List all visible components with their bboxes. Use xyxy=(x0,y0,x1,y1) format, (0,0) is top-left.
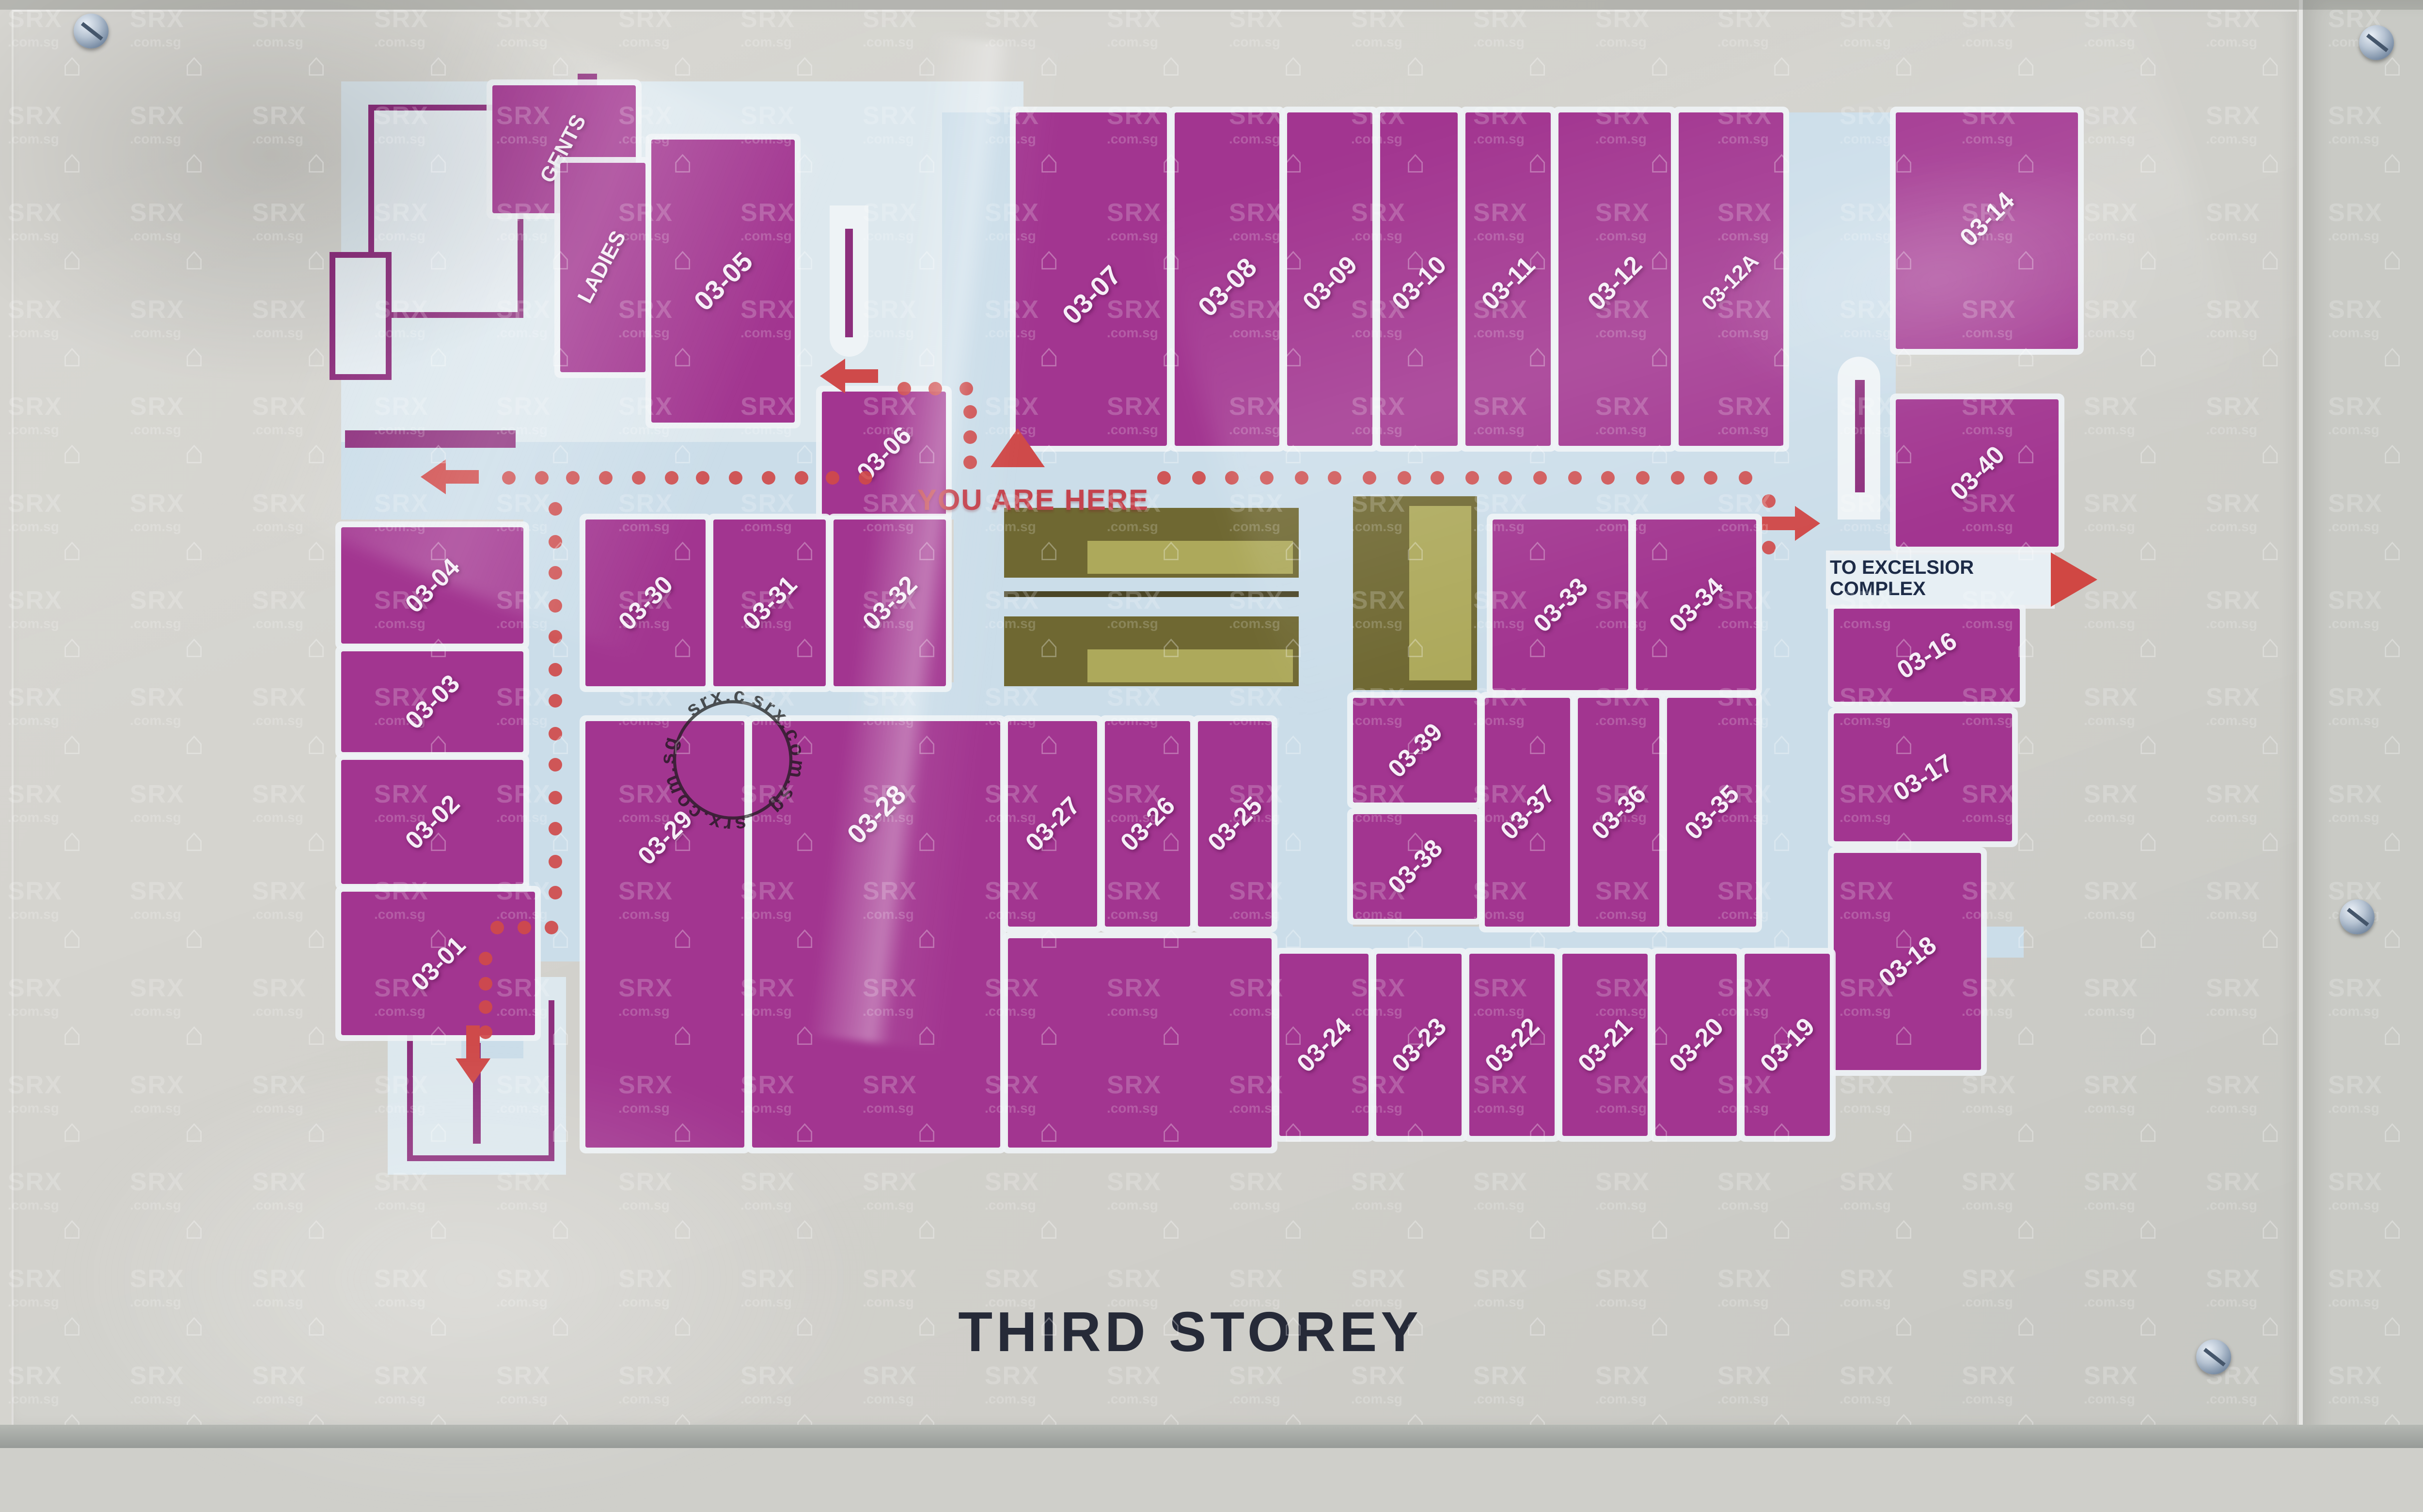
route-dot xyxy=(729,471,742,485)
unit-label: 03-21 xyxy=(1572,1012,1638,1078)
unit-03-27: 03-27 xyxy=(1008,721,1097,927)
unit-03-30: 03-30 xyxy=(585,520,706,686)
unit-label: 03-40 xyxy=(1944,440,2010,506)
route-dot xyxy=(1636,471,1650,485)
unit-03-37: 03-37 xyxy=(1485,698,1570,927)
route-dot xyxy=(549,694,562,708)
route-dot xyxy=(545,921,558,934)
route-dot xyxy=(549,566,562,580)
unit-03-19: 03-19 xyxy=(1745,954,1830,1136)
escalator-icon xyxy=(830,205,868,357)
panel-top-edge xyxy=(0,0,2423,10)
route-dot xyxy=(1704,471,1717,485)
unit-03-36: 03-36 xyxy=(1578,698,1659,927)
unit-label: 03-19 xyxy=(1754,1012,1820,1078)
route-dot xyxy=(1225,471,1239,485)
route-dot xyxy=(1739,471,1752,485)
unit-03-01: 03-01 xyxy=(341,892,535,1035)
unit-label: 03-26 xyxy=(1115,791,1180,857)
route-dot xyxy=(963,430,977,444)
unit-label: 03-33 xyxy=(1527,572,1593,638)
escalator-well-step xyxy=(1410,506,1471,680)
escalator-well-step xyxy=(1086,540,1293,573)
unit-03-03: 03-03 xyxy=(341,651,523,752)
route-dot xyxy=(762,471,775,485)
route-dot xyxy=(1671,471,1684,485)
route-dot xyxy=(479,1000,492,1014)
route-dot xyxy=(1192,471,1206,485)
unit-03-26: 03-26 xyxy=(1105,721,1190,927)
route-dot xyxy=(1498,471,1512,485)
panel-bottom-edge xyxy=(0,1425,2423,1448)
unit-03-20: 03-20 xyxy=(1655,954,1737,1136)
route-dot xyxy=(1363,471,1376,485)
escalator-well xyxy=(1004,508,1299,578)
you-are-here-label: YOU ARE HERE xyxy=(868,485,1198,518)
route-dot xyxy=(960,382,973,395)
unit-03-17: 03-17 xyxy=(1834,713,2012,841)
route-dot xyxy=(518,921,531,934)
floor-plan: GENTSLADIES03-0503-0603-0703-0803-0903-1… xyxy=(0,0,2423,1448)
unit-label: 03-34 xyxy=(1663,572,1729,638)
route-dot xyxy=(1568,471,1582,485)
unit-label: 03-28 xyxy=(841,779,912,850)
unit-label: 03-39 xyxy=(1382,717,1448,783)
unit-03-38: 03-38 xyxy=(1353,814,1477,919)
screw-icon xyxy=(2196,1339,2231,1374)
unit-label: 03-16 xyxy=(1892,626,1962,684)
unit-03-10: 03-10 xyxy=(1380,112,1458,446)
route-dot xyxy=(963,456,977,469)
unit-label: 03-03 xyxy=(399,669,465,735)
unit-label: 03-07 xyxy=(1056,259,1127,331)
route-dot xyxy=(549,599,562,613)
excelsior-exit-label: TO EXCELSIOR COMPLEX xyxy=(1830,554,2051,605)
unit-03-14: 03-14 xyxy=(1896,112,2078,349)
unit-label: 03-14 xyxy=(1954,186,2020,252)
route-dot xyxy=(549,791,562,804)
screw-icon xyxy=(2359,25,2394,60)
route-dot xyxy=(1295,471,1308,485)
corridor xyxy=(1272,682,1353,954)
route-arrow-icon xyxy=(456,1025,490,1084)
unit-label: 03-08 xyxy=(1192,252,1263,323)
unit-03-09: 03-09 xyxy=(1287,112,1372,446)
unit-label: 03-23 xyxy=(1386,1012,1452,1078)
route-dot xyxy=(1762,541,1776,554)
excelsior-arrow-icon xyxy=(2051,552,2097,607)
unit-03-25: 03-25 xyxy=(1198,721,1272,927)
screw-icon xyxy=(74,14,109,48)
route-dot xyxy=(549,630,562,644)
route-dot xyxy=(1398,471,1411,485)
corridor xyxy=(942,112,1016,446)
unit-LADIES: LADIES xyxy=(560,163,645,372)
route-dot xyxy=(897,382,911,395)
unit-label: 03-30 xyxy=(613,570,678,636)
unit-label: 03-01 xyxy=(405,930,471,996)
route-dot xyxy=(928,382,942,395)
unit-label: 03-10 xyxy=(1386,250,1452,316)
route-dot xyxy=(1260,471,1274,485)
unit-label: 03-36 xyxy=(1586,779,1652,845)
unit-03-02: 03-02 xyxy=(341,760,523,884)
route-dot xyxy=(549,535,562,549)
unit-03-12: 03-12 xyxy=(1558,112,1671,446)
unit-label: 03-27 xyxy=(1020,791,1086,857)
route-dot xyxy=(490,921,504,934)
wall-segment xyxy=(1004,591,1299,597)
escalator-icon xyxy=(1838,357,1880,520)
unit-block xyxy=(1008,938,1272,1148)
unit-03-08: 03-08 xyxy=(1175,112,1279,446)
route-dot xyxy=(549,502,562,516)
unit-label: 03-24 xyxy=(1291,1012,1357,1078)
route-dot xyxy=(632,471,645,485)
unit-03-35: 03-35 xyxy=(1667,698,1756,927)
route-dot xyxy=(1431,471,1444,485)
unit-label: 03-11 xyxy=(1476,251,1541,315)
svg-text:srx.com.sg srx.com.sg srx.co: srx.com.sg srx.com.sg srx.com.sg xyxy=(651,678,814,841)
route-arrow-icon xyxy=(820,359,878,394)
route-arrow-icon xyxy=(1762,506,1820,541)
unit-label: 03-37 xyxy=(1495,779,1560,845)
unit-label: 03-04 xyxy=(399,552,465,618)
route-dot xyxy=(1601,471,1615,485)
unit-03-07: 03-07 xyxy=(1016,112,1167,446)
route-dot xyxy=(549,886,562,899)
unit-03-16: 03-16 xyxy=(1834,609,2020,702)
route-dot xyxy=(826,471,839,485)
unit-03-11: 03-11 xyxy=(1465,112,1551,446)
route-dot xyxy=(479,977,492,991)
unit-03-12A: 03-12A xyxy=(1679,112,1783,446)
unit-03-40: 03-40 xyxy=(1896,399,2059,547)
unit-label: 03-17 xyxy=(1888,748,1958,806)
route-dot xyxy=(1465,471,1479,485)
route-dot xyxy=(665,471,678,485)
unit-label: 03-20 xyxy=(1663,1012,1729,1078)
unit-03-33: 03-33 xyxy=(1493,520,1628,690)
unit-label: 03-05 xyxy=(688,246,759,317)
you-are-here-marker-icon xyxy=(991,428,1045,467)
unit-label: 03-02 xyxy=(399,789,465,855)
page-title: THIRD STOREY xyxy=(861,1303,1520,1367)
unit-label: 03-22 xyxy=(1479,1012,1545,1078)
photo-of-mall-directory: GENTSLADIES03-0503-0603-0703-0803-0903-1… xyxy=(0,0,2423,1448)
escalator-well xyxy=(1353,496,1477,690)
route-dot xyxy=(696,471,709,485)
unit-03-22: 03-22 xyxy=(1469,954,1555,1136)
screw-icon xyxy=(2340,899,2375,934)
escalator-well xyxy=(1004,616,1299,686)
escalator-slot xyxy=(845,229,853,337)
route-dot xyxy=(1157,471,1171,485)
route-dot xyxy=(963,405,977,419)
unit-03-39: 03-39 xyxy=(1353,698,1477,803)
route-dot xyxy=(549,758,562,772)
outlined-room xyxy=(330,252,392,380)
unit-03-05: 03-05 xyxy=(651,140,795,423)
route-dot xyxy=(549,663,562,677)
unit-03-23: 03-23 xyxy=(1376,954,1462,1136)
unit-label: 03-38 xyxy=(1382,834,1448,899)
unit-03-31: 03-31 xyxy=(713,520,826,686)
unit-03-32: 03-32 xyxy=(834,520,946,686)
unit-label: 03-32 xyxy=(857,570,923,636)
unit-03-34: 03-34 xyxy=(1636,520,1756,690)
unit-label: 03-31 xyxy=(737,570,802,636)
route-dot xyxy=(795,471,808,485)
route-dot xyxy=(549,727,562,740)
escalator-well-step xyxy=(1086,648,1293,682)
escalator-slot xyxy=(1855,380,1865,492)
unit-label: LADIES xyxy=(574,227,631,307)
route-dot xyxy=(549,855,562,868)
route-dot xyxy=(479,952,492,965)
unit-label: 03-25 xyxy=(1202,791,1268,857)
route-dot xyxy=(502,471,516,485)
unit-label: 03-35 xyxy=(1679,779,1745,845)
unit-label: 03-18 xyxy=(1873,930,1942,992)
unit-03-18: 03-18 xyxy=(1834,853,1981,1070)
srx-stamp-icon: srx.com.sg srx.com.sg srx.com.sg xyxy=(651,678,814,841)
route-dot xyxy=(566,471,580,485)
route-dot xyxy=(535,471,549,485)
unit-label: 03-12A xyxy=(1698,250,1764,316)
unit-03-21: 03-21 xyxy=(1562,954,1648,1136)
route-dot xyxy=(859,471,872,485)
route-arrow-icon xyxy=(421,459,479,494)
unit-label: 03-12 xyxy=(1582,250,1648,316)
wall-segment xyxy=(345,430,516,448)
route-dot xyxy=(1533,471,1547,485)
unit-03-24: 03-24 xyxy=(1279,954,1369,1136)
unit-03-04: 03-04 xyxy=(341,527,523,644)
unit-label: 03-09 xyxy=(1297,250,1363,316)
route-dot xyxy=(599,471,613,485)
route-dot xyxy=(549,822,562,835)
route-dot xyxy=(1328,471,1341,485)
